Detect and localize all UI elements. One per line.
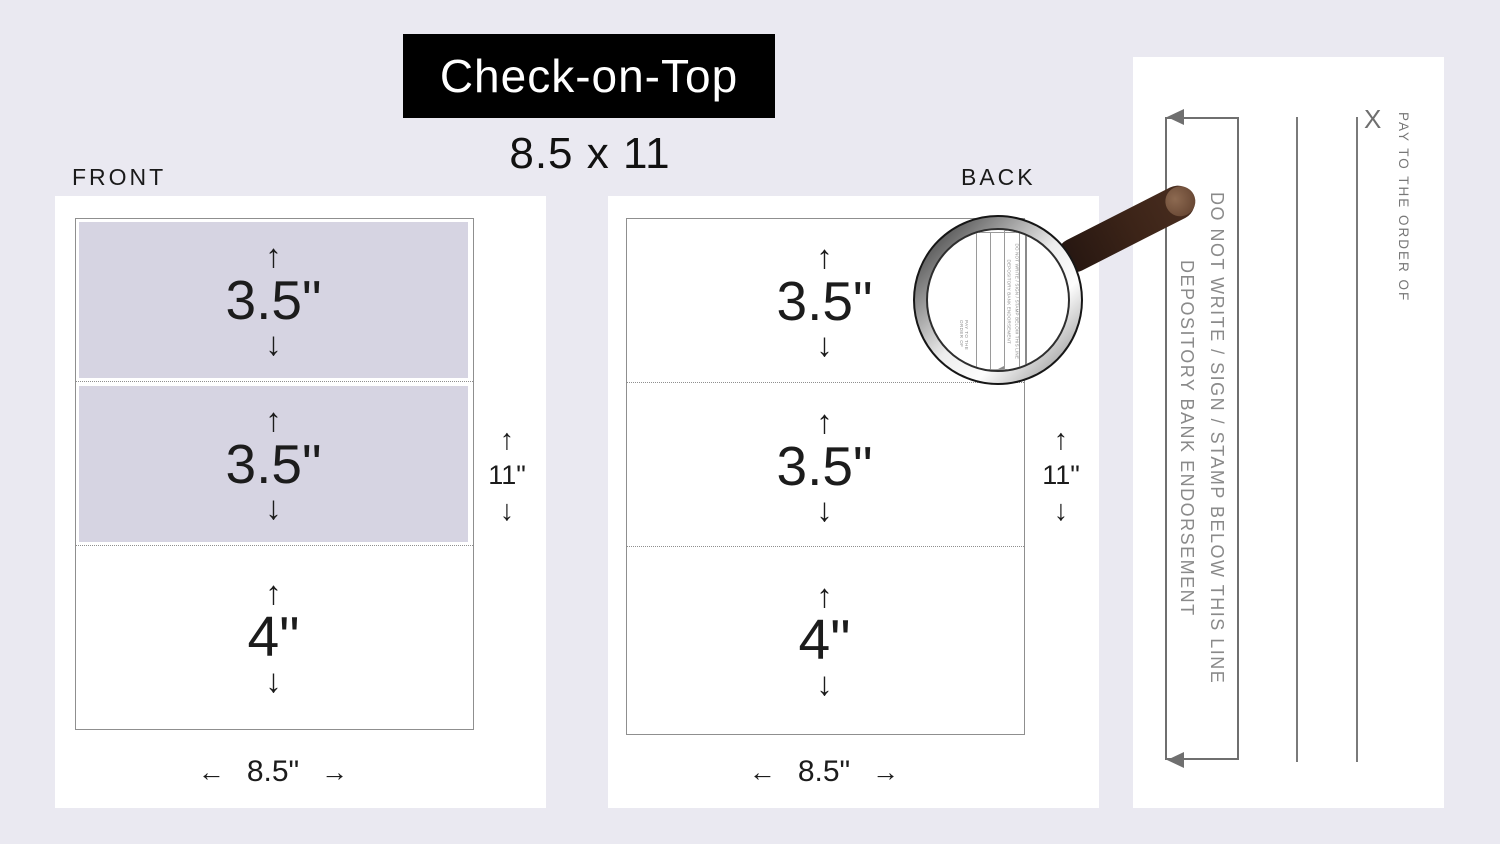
front-section-3: ↑ 4" ↓ (79, 550, 468, 724)
back-height-dimension: ↑ 11" ↓ (1031, 424, 1091, 527)
left-arrowhead-icon (1167, 109, 1184, 125)
magnifier-lens-view: DO NOT WRITE / SIGN / STAMP BELOW THIS L… (926, 228, 1070, 372)
up-arrow-icon: ↑ (500, 424, 515, 456)
down-arrow-icon: ↓ (265, 666, 282, 696)
left-arrow-icon: ← (749, 759, 776, 786)
front-label: FRONT (72, 164, 166, 191)
down-arrow-icon: ↓ (816, 495, 833, 525)
back-section-2-label: 3.5" (777, 437, 873, 495)
mini-sheet-border (1025, 230, 1027, 372)
front-width-dimension: ← 8.5" → (123, 752, 423, 792)
mini-depository-line: DEPOSITORY BANK ENDORSEMENT (1005, 231, 1013, 371)
back-width-dimension: ← 8.5" → (674, 752, 974, 792)
mini-signature-line (990, 232, 991, 369)
front-section-1-label: 3.5" (226, 271, 322, 329)
down-arrow-icon: ↓ (265, 493, 282, 523)
front-height-label: 11" (488, 456, 526, 495)
front-height-dimension: ↑ 11" ↓ (477, 424, 537, 527)
mini-endorsement-box: DO NOT WRITE / SIGN / STAMP BELOW THIS L… (1004, 230, 1020, 371)
mini-pay-to-label: PAY TO THE ORDER OF (960, 320, 969, 370)
back-fold-line-1 (627, 382, 1024, 383)
up-arrow-icon: ↑ (265, 405, 282, 435)
left-arrowhead-icon (1167, 752, 1184, 768)
back-section-3-label: 4" (799, 611, 851, 669)
front-fold-line-1 (76, 381, 473, 382)
back-height-label: 11" (1042, 456, 1080, 495)
mini-do-not-write-line: DO NOT WRITE / SIGN / STAMP BELOW THIS L… (1013, 231, 1020, 371)
front-section-1: ↑ 3.5" ↓ (79, 222, 468, 378)
front-width-label: 8.5" (247, 755, 299, 789)
front-section-3-label: 4" (248, 608, 300, 666)
back-fold-line-2 (627, 546, 1024, 547)
back-section-3: ↑ 4" ↓ (630, 551, 1019, 729)
sheet-size-label: 8.5 x 11 (404, 124, 776, 184)
endorsement-signature-line (1296, 117, 1298, 762)
back-section-2: ↑ 3.5" ↓ (630, 387, 1019, 544)
up-arrow-icon: ↑ (1054, 424, 1069, 456)
left-arrow-icon: ← (198, 759, 225, 786)
down-arrow-icon: ↓ (265, 329, 282, 359)
up-arrow-icon: ↑ (265, 578, 282, 608)
do-not-write-line: DO NOT WRITE / SIGN / STAMP BELOW THIS L… (1202, 129, 1232, 749)
up-arrow-icon: ↑ (816, 581, 833, 611)
back-label: BACK (961, 164, 1036, 191)
down-arrow-icon: ↓ (500, 495, 515, 527)
endorsement-text: DO NOT WRITE / SIGN / STAMP BELOW THIS L… (1172, 129, 1232, 749)
back-section-1-label: 3.5" (777, 272, 873, 330)
down-arrow-icon: ↓ (816, 669, 833, 699)
endorsement-signature-line (1356, 117, 1358, 762)
front-section-2-label: 3.5" (226, 435, 322, 493)
mini-left-arrowhead-icon (998, 366, 1004, 372)
down-arrow-icon: ↓ (816, 330, 833, 360)
right-arrow-icon: → (872, 759, 899, 786)
title-text: Check-on-Top (440, 49, 738, 103)
up-arrow-icon: ↑ (265, 241, 282, 271)
mini-endorsement-text: DO NOT WRITE / SIGN / STAMP BELOW THIS L… (1005, 231, 1020, 371)
sign-here-x-mark: X (1364, 104, 1381, 135)
up-arrow-icon: ↑ (816, 242, 833, 272)
up-arrow-icon: ↑ (816, 407, 833, 437)
title-banner: Check-on-Top (403, 34, 775, 118)
down-arrow-icon: ↓ (1054, 495, 1069, 527)
pay-to-the-order-of-label: PAY TO THE ORDER OF (1396, 112, 1411, 332)
front-section-2: ↑ 3.5" ↓ (79, 386, 468, 542)
front-fold-line-2 (76, 545, 473, 546)
back-width-label: 8.5" (798, 755, 850, 789)
right-arrow-icon: → (321, 759, 348, 786)
mini-signature-line (976, 232, 977, 369)
